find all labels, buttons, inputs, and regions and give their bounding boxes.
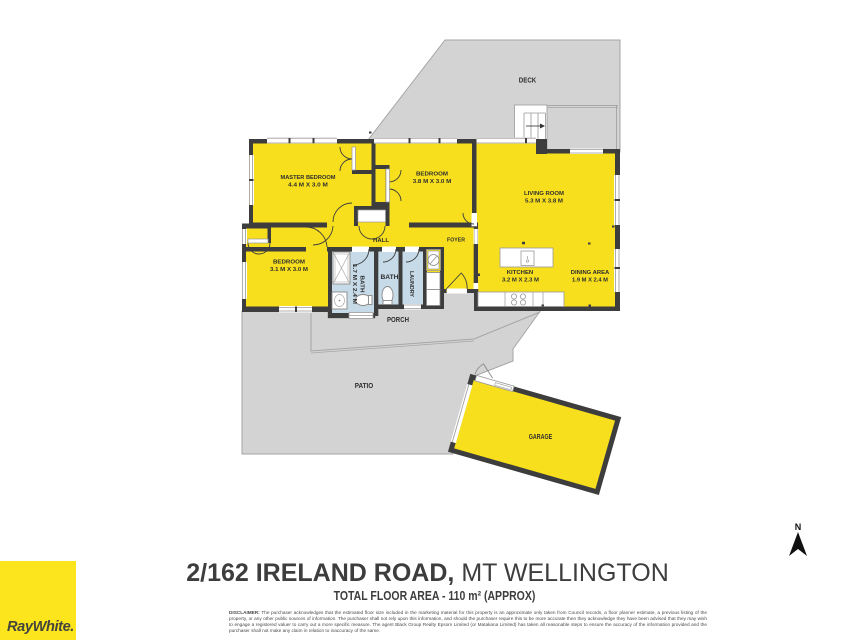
- svg-text:1.9 M X 2.4 M: 1.9 M X 2.4 M: [572, 277, 608, 283]
- svg-text:3.2 M X 2.3 M: 3.2 M X 2.3 M: [502, 277, 539, 283]
- svg-text:3.1 M X 3.0 M: 3.1 M X 3.0 M: [270, 267, 308, 273]
- svg-text:PATIO: PATIO: [355, 381, 374, 390]
- svg-text:BATH: BATH: [381, 274, 400, 281]
- svg-text:1.7 M X 2.4 M: 1.7 M X 2.4 M: [351, 264, 357, 304]
- svg-text:N: N: [795, 522, 802, 532]
- svg-text:HALL: HALL: [373, 238, 389, 244]
- svg-text:BATH: BATH: [359, 276, 365, 293]
- svg-text:PORCH: PORCH: [387, 315, 409, 324]
- svg-text:5.3 M X 3.8 M: 5.3 M X 3.8 M: [525, 199, 563, 205]
- svg-text:LIVING ROOM: LIVING ROOM: [524, 191, 565, 197]
- svg-text:3.8 M X 3.0 M: 3.8 M X 3.0 M: [413, 179, 452, 185]
- svg-text:BEDROOM: BEDROOM: [273, 260, 306, 266]
- svg-text:KITCHEN: KITCHEN: [507, 270, 534, 276]
- svg-text:4.4 M X 3.0 M: 4.4 M X 3.0 M: [288, 182, 328, 188]
- svg-text:LAUNDRY: LAUNDRY: [408, 271, 414, 297]
- svg-text:DECK: DECK: [519, 76, 537, 85]
- svg-text:GARAGE: GARAGE: [529, 432, 553, 441]
- svg-text:MASTER BEDROOM: MASTER BEDROOM: [281, 175, 337, 181]
- svg-text:DINING AREA: DINING AREA: [571, 270, 610, 276]
- svg-text:BEDROOM: BEDROOM: [416, 172, 449, 178]
- svg-text:FOYER: FOYER: [447, 238, 466, 244]
